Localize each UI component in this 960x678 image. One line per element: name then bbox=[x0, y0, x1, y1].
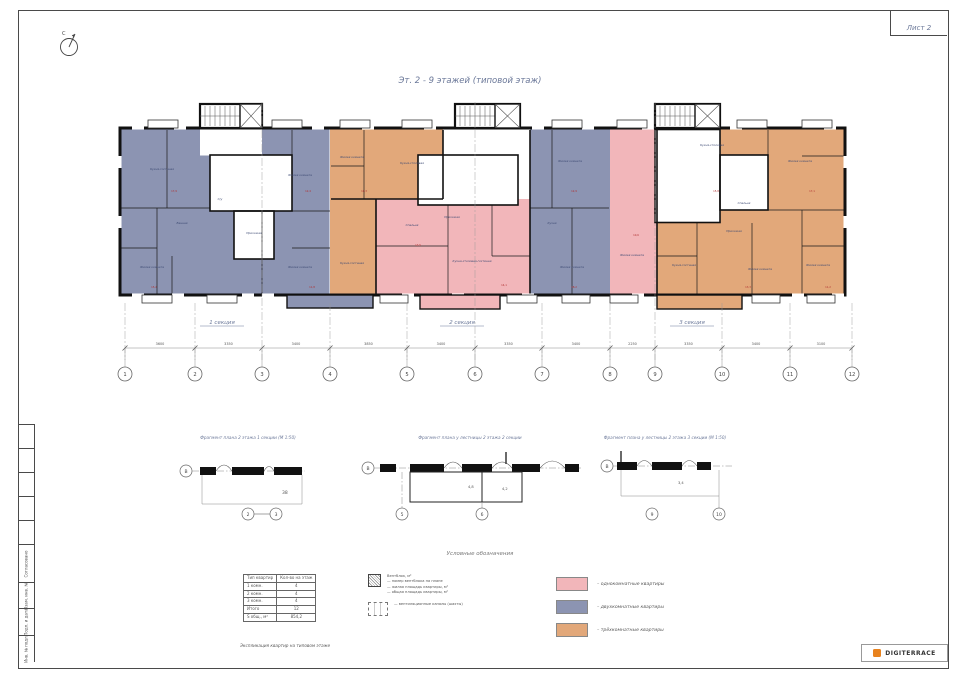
svg-text:7: 7 bbox=[540, 372, 543, 378]
stamp-cell-8: Инв. № подл. bbox=[18, 635, 34, 662]
legend-item: – двухкомнатные квартиры bbox=[556, 600, 664, 614]
drawing-sheet: { "sheet": { "number_label": "Лист 2", "… bbox=[0, 0, 960, 678]
svg-text:С/у: С/у bbox=[218, 197, 223, 201]
stamp-cell-empty bbox=[18, 424, 34, 448]
svg-text:5: 5 bbox=[405, 372, 408, 378]
vent-block-icon bbox=[368, 574, 381, 587]
stamp-cell-empty bbox=[18, 472, 34, 496]
svg-text:Жилая комната: Жилая комната bbox=[559, 265, 584, 269]
svg-text:11: 11 bbox=[787, 372, 794, 378]
svg-text:10: 10 bbox=[719, 372, 726, 378]
legend-swatch bbox=[556, 577, 588, 591]
svg-text:13,3: 13,3 bbox=[745, 285, 751, 289]
table-row: 3 комн.4 bbox=[244, 598, 316, 606]
vent-duct-icon bbox=[368, 602, 388, 616]
table-row: S общ., м²854,2 bbox=[244, 613, 316, 621]
svg-text:Жилая комната: Жилая комната bbox=[787, 159, 812, 163]
stamp-cell-7: Подп. и дата bbox=[18, 608, 34, 635]
fragment-1-title: Фрагмент плана 2 этажа 1 секции (М 1:50) bbox=[200, 435, 296, 440]
svg-text:15,2: 15,2 bbox=[151, 285, 157, 289]
fragment-3-axis-a: 9 bbox=[651, 512, 654, 518]
plan-title: Эт. 2 - 9 этажей (типовой этаж) bbox=[230, 76, 710, 86]
svg-text:Жилая комната: Жилая комната bbox=[287, 173, 312, 177]
stamp-cell-5: Согласовано bbox=[18, 544, 34, 582]
svg-text:Кухня-гостиная: Кухня-гостиная bbox=[672, 263, 696, 267]
fragment-3: Фрагмент плана у лестницы 2 этажа 3 секц… bbox=[601, 435, 732, 520]
svg-text:3350: 3350 bbox=[224, 342, 233, 346]
svg-text:Жилая комната: Жилая комната bbox=[747, 267, 772, 271]
svg-text:Кухня-столовая-гостиная: Кухня-столовая-гостиная bbox=[453, 259, 492, 263]
floor-plan: Кухня-гостинаяЖилая комнатаЖилая комната… bbox=[112, 96, 860, 400]
svg-text:11,2: 11,2 bbox=[825, 285, 831, 289]
svg-text:Жилая комната: Жилая комната bbox=[339, 155, 364, 159]
svg-text:3350: 3350 bbox=[684, 342, 693, 346]
svg-text:3400: 3400 bbox=[437, 342, 446, 346]
svg-text:3850: 3850 bbox=[364, 342, 373, 346]
fragment-3-axis-b: 10 bbox=[716, 512, 722, 518]
hatch-legend: Вентблок, м²— номер вентблока на плане— … bbox=[368, 574, 498, 622]
legend-swatch bbox=[556, 600, 588, 614]
note-line: — номер вентблока на плане bbox=[387, 579, 448, 584]
svg-text:12: 12 bbox=[849, 372, 856, 378]
svg-text:Спальня: Спальня bbox=[406, 223, 419, 227]
svg-text:Ванная: Ванная bbox=[176, 221, 187, 225]
fragment-2-axis-a: 5 bbox=[401, 512, 404, 518]
logo: DIGITERRACE bbox=[861, 644, 948, 662]
section-labels: 1 секция 2 секция 3 секция bbox=[200, 320, 714, 326]
svg-text:12,9: 12,9 bbox=[571, 189, 577, 193]
vent-duct-note: — вентиляционные каналы (шахты) bbox=[394, 602, 463, 607]
section-3-label: 3 секция bbox=[679, 320, 705, 326]
svg-text:Прихожая: Прихожая bbox=[444, 215, 460, 219]
vent-block-notes: Вентблок, м²— номер вентблока на плане— … bbox=[387, 574, 448, 596]
svg-text:15,8: 15,8 bbox=[713, 189, 719, 193]
stamp-cell-empty bbox=[18, 496, 34, 520]
svg-text:13,5: 13,5 bbox=[415, 243, 421, 247]
svg-text:2: 2 bbox=[193, 372, 196, 378]
svg-text:Жилая комната: Жилая комната bbox=[557, 159, 582, 163]
legend-item: – однокомнатные квартиры bbox=[556, 577, 664, 591]
plan-fragments: Фрагмент плана 2 этажа 1 секции (М 1:50)… bbox=[170, 426, 760, 526]
svg-text:17,1: 17,1 bbox=[809, 189, 815, 193]
svg-text:10,6: 10,6 bbox=[633, 233, 639, 237]
fragment-3-left-axis: В bbox=[605, 464, 608, 470]
svg-text:3350: 3350 bbox=[504, 342, 513, 346]
svg-text:17,9: 17,9 bbox=[171, 189, 177, 193]
svg-text:3600: 3600 bbox=[156, 342, 165, 346]
fragment-2-area-a: 4,8 bbox=[468, 485, 474, 489]
apartment-type-legend: – однокомнатные квартиры– двухкомнатные … bbox=[556, 577, 664, 646]
svg-text:8: 8 bbox=[608, 372, 611, 378]
svg-text:3100: 3100 bbox=[817, 342, 826, 346]
fragment-3-title: Фрагмент плана у лестницы 2 этажа 3 секц… bbox=[604, 435, 727, 440]
fragment-2: Фрагмент плана у лестницы 2 этажа 2 секц… bbox=[362, 435, 582, 520]
svg-text:3400: 3400 bbox=[572, 342, 581, 346]
svg-text:Прихожая: Прихожая bbox=[246, 231, 262, 235]
section-1-label: 1 секция bbox=[209, 320, 235, 326]
svg-text:Жилая комната: Жилая комната bbox=[139, 265, 164, 269]
legend-label: – однокомнатные квартиры bbox=[597, 582, 664, 587]
svg-text:Жилая комната: Жилая комната bbox=[287, 265, 312, 269]
fragment-2-area-b: 4,2 bbox=[502, 487, 508, 491]
fragment-1-axis-a: 2 bbox=[247, 512, 250, 518]
svg-text:18,2: 18,2 bbox=[571, 285, 577, 289]
table-row: Итого12 bbox=[244, 606, 316, 614]
svg-text:Кухня-гостиная: Кухня-гостиная bbox=[150, 167, 174, 171]
logo-text: DIGITERRACE bbox=[885, 650, 935, 657]
table-row: 1 комн.4 bbox=[244, 582, 316, 590]
table-header-cell: Кол-во на этаж bbox=[277, 575, 316, 583]
stair-tower-2 bbox=[455, 104, 520, 128]
svg-text:3: 3 bbox=[260, 372, 263, 378]
table-row: 2 комн.4 bbox=[244, 590, 316, 598]
note-line: — общая площадь квартиры, м² bbox=[387, 590, 448, 595]
table-header-cell: Тип квартир bbox=[244, 575, 277, 583]
apartment-table: Тип квартирКол-во на этаж1 комн.42 комн.… bbox=[243, 574, 316, 622]
svg-text:14,1: 14,1 bbox=[501, 283, 507, 287]
fragment-2-title: Фрагмент плана у лестницы 2 этажа 2 секц… bbox=[418, 435, 522, 440]
legend-label: – трёхкомнатные квартиры bbox=[597, 628, 664, 633]
dimension-values: 3600335034003850340033503400225033503400… bbox=[156, 342, 826, 346]
legend-swatch bbox=[556, 623, 588, 637]
svg-text:Спальня: Спальня bbox=[738, 201, 751, 205]
legend-label: – двухкомнатные квартиры bbox=[597, 605, 664, 610]
legend-item: – трёхкомнатные квартиры bbox=[556, 623, 664, 637]
side-stamp: СогласованоВзам. инв. №Подп. и датаИнв. … bbox=[18, 424, 35, 662]
north-arrow-icon: С bbox=[54, 26, 84, 60]
svg-text:2250: 2250 bbox=[628, 342, 637, 346]
svg-text:Кухня-столовая: Кухня-столовая bbox=[700, 143, 724, 147]
sheet-number: Лист 2 bbox=[890, 10, 947, 36]
fragment-1: Фрагмент плана 2 этажа 1 секции (М 1:50)… bbox=[180, 435, 305, 520]
svg-text:Прихожая: Прихожая bbox=[726, 229, 742, 233]
svg-text:Кухня-гостиная: Кухня-гостиная bbox=[340, 261, 364, 265]
north-label: С bbox=[62, 31, 66, 37]
svg-text:3400: 3400 bbox=[292, 342, 301, 346]
stair-tower-1 bbox=[200, 104, 262, 128]
svg-text:Жилая комната: Жилая комната bbox=[619, 253, 644, 257]
stamp-cell-empty bbox=[18, 448, 34, 472]
fragment-2-left-axis: В bbox=[366, 466, 369, 472]
svg-text:9: 9 bbox=[653, 372, 656, 378]
svg-text:Кухня: Кухня bbox=[547, 221, 556, 225]
fragment-2-axis-b: 6 bbox=[481, 512, 484, 518]
axis-bubbles: 123456789101112 bbox=[118, 367, 859, 381]
svg-text:Жилая комната: Жилая комната bbox=[805, 263, 830, 267]
fragment-1-dim: 38 bbox=[282, 490, 288, 496]
fragment-3-dim: 3,4 bbox=[678, 481, 684, 485]
stamp-cell-6: Взам. инв. № bbox=[18, 582, 34, 608]
logo-icon bbox=[873, 649, 881, 657]
fragment-1-axis-b: 3 bbox=[275, 512, 278, 518]
svg-text:16,3: 16,3 bbox=[361, 189, 367, 193]
stair-tower-3 bbox=[655, 104, 720, 128]
symbols-title: Условные обозначения bbox=[380, 551, 580, 557]
svg-text:Кухня-столовая: Кухня-столовая bbox=[400, 161, 424, 165]
svg-text:12,4: 12,4 bbox=[305, 189, 311, 193]
section-2-label: 2 секция bbox=[449, 320, 475, 326]
svg-text:11,8: 11,8 bbox=[309, 285, 315, 289]
stamp-cell-empty bbox=[18, 520, 34, 544]
svg-text:1: 1 bbox=[123, 372, 126, 378]
svg-text:3400: 3400 bbox=[752, 342, 761, 346]
svg-text:6: 6 bbox=[473, 372, 476, 378]
apartment-table-caption: Экспликация квартир на типовом этаже bbox=[240, 643, 360, 648]
fragment-1-left-axis: В bbox=[184, 469, 187, 475]
